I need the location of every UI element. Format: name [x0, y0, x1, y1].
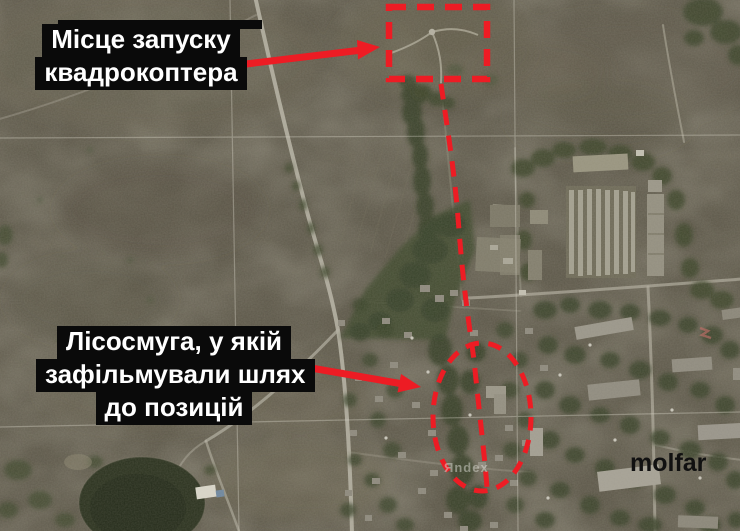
launch-label-line-1: Місце запуску: [42, 24, 240, 57]
forest-label-line-1: Лісосмуга, у якій: [57, 326, 291, 359]
forest-strip-label: Лісосмуга, у якій зафільмували шлях до п…: [36, 326, 312, 425]
launch-site-label: Місце запуску квадрокоптера: [30, 24, 252, 90]
forest-label-line-2: зафільмували шлях: [36, 359, 315, 392]
map-provider-watermark: Яndex: [444, 460, 489, 475]
forest-label-line-3: до позицій: [96, 392, 253, 425]
annotated-satellite-screenshot: Місце запуску квадрокоптера Лісосмуга, у…: [0, 0, 740, 531]
launch-label-line-2: квадрокоптера: [35, 57, 246, 90]
molfar-logo: molfar: [630, 449, 706, 478]
